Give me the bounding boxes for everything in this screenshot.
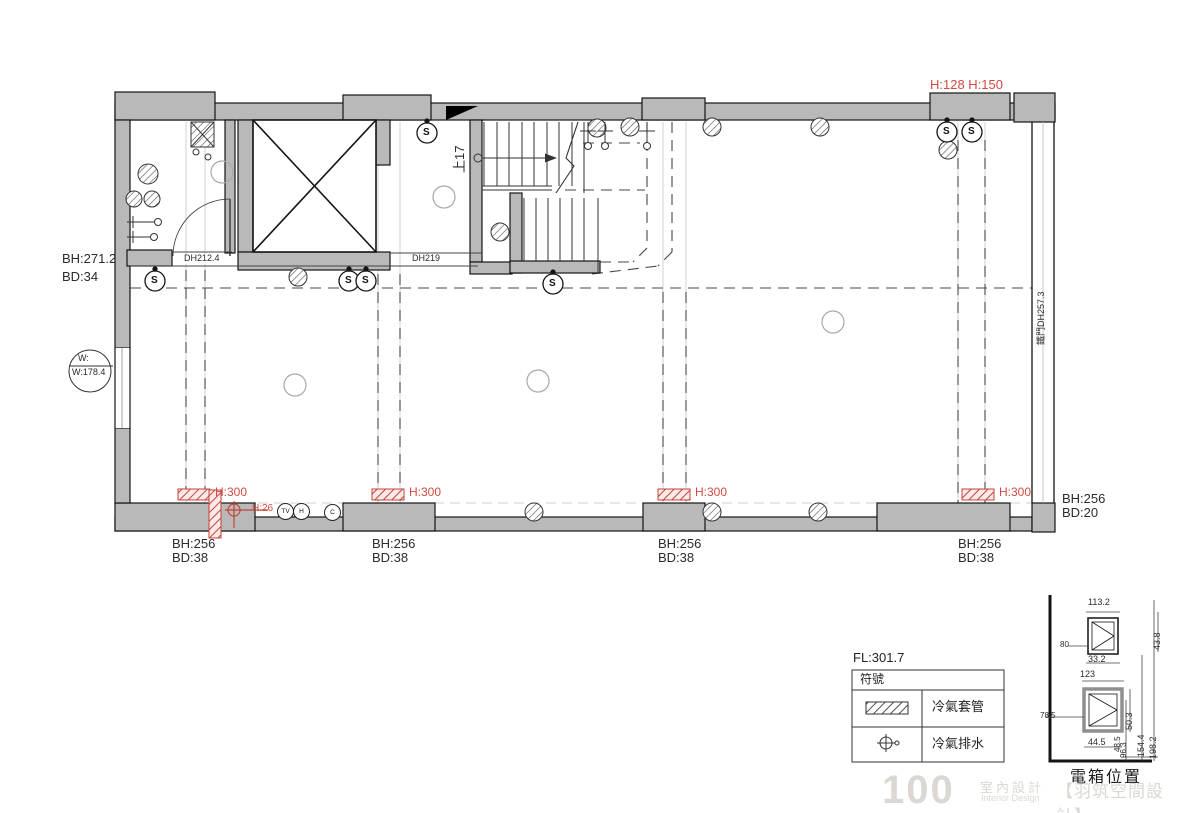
beam-label-3: BH:256BD:38 [658, 537, 701, 566]
dim-198-2: 198.2 [1149, 736, 1159, 759]
stair-up-label: 上17 [453, 146, 467, 173]
dim-43-8: 43.8 [1153, 632, 1163, 650]
dim-50-3: 50.3 [1125, 712, 1135, 730]
h-outlet-symbol: H [293, 503, 310, 520]
switch-s: S [362, 275, 369, 286]
stair [474, 122, 598, 273]
dim-78-5: 78.5 [1040, 712, 1056, 721]
floor-plan-page: H:128 H:150 BH:271.2 BD:34 W: W:178.4 DH… [0, 0, 1184, 813]
ceiling-outlets [289, 118, 957, 521]
dim-44-5: 44.5 [1088, 738, 1106, 748]
legend-drain-symbol [877, 734, 899, 752]
left-beam-height: BH:271.2 [62, 252, 116, 266]
switch-s: S [423, 127, 430, 138]
switch-s: S [151, 275, 158, 286]
switch-s: S [968, 126, 975, 137]
dim-113-2: 113.2 [1088, 598, 1110, 608]
beam-label-4: BH:256BD:38 [958, 537, 1001, 566]
floor-level-label: FL:301.7 [853, 651, 904, 665]
ac-height-4: H:300 [999, 486, 1031, 499]
elevator-shaft [253, 120, 376, 252]
bathroom-door-height: DH212.4 [182, 254, 222, 264]
iron-door-height: 鐵門DH257.3 [1037, 291, 1047, 345]
legend-ac-sleeve: 冷氣套管 [932, 700, 984, 714]
ac-height-1: H:300 [215, 486, 247, 499]
window [115, 348, 130, 428]
ac-height-3: H:300 [695, 486, 727, 499]
right-beam-label: BH:256BD:20 [1062, 492, 1105, 521]
beam-label-2: BH:256BD:38 [372, 537, 415, 566]
beam-label-1: BH:256BD:38 [172, 537, 215, 566]
left-beam-depth: BD:34 [62, 270, 98, 284]
ac-height-2: H:300 [409, 486, 441, 499]
dim-154-4: 154.4 [1137, 734, 1147, 757]
hall-door-height: DH219 [410, 254, 442, 264]
brand-logo: 100 [882, 768, 955, 813]
tv-outlet-symbol: TV [277, 503, 294, 520]
bathroom-door [173, 199, 230, 256]
window-tag-top: W: [78, 354, 89, 364]
legend-hatch-swatch [866, 702, 908, 714]
floor-plan-drawing [0, 0, 1184, 813]
dim-80: 80 [1060, 641, 1069, 650]
switch-s: S [943, 126, 950, 137]
dim-48-5: 48.5 [1114, 736, 1123, 752]
switch-s: S [549, 278, 556, 289]
c-outlet-symbol: C [324, 504, 341, 521]
window-tag-width: W:178.4 [72, 368, 105, 378]
studio-watermark: 【羽筑空間設計】 [1056, 777, 1184, 813]
brand-en: Interior Design [981, 793, 1040, 803]
legend-ac-drain: 冷氣排水 [932, 737, 984, 751]
dim-33-2: 33.2 [1088, 655, 1106, 665]
dim-123: 123 [1080, 670, 1095, 680]
bathroom-fixtures [126, 122, 214, 243]
legend-header: 符號 [860, 673, 884, 686]
drain-height: H:26 [252, 503, 273, 514]
switch-s: S [345, 275, 352, 286]
top-right-heights: H:128 H:150 [930, 78, 1003, 92]
